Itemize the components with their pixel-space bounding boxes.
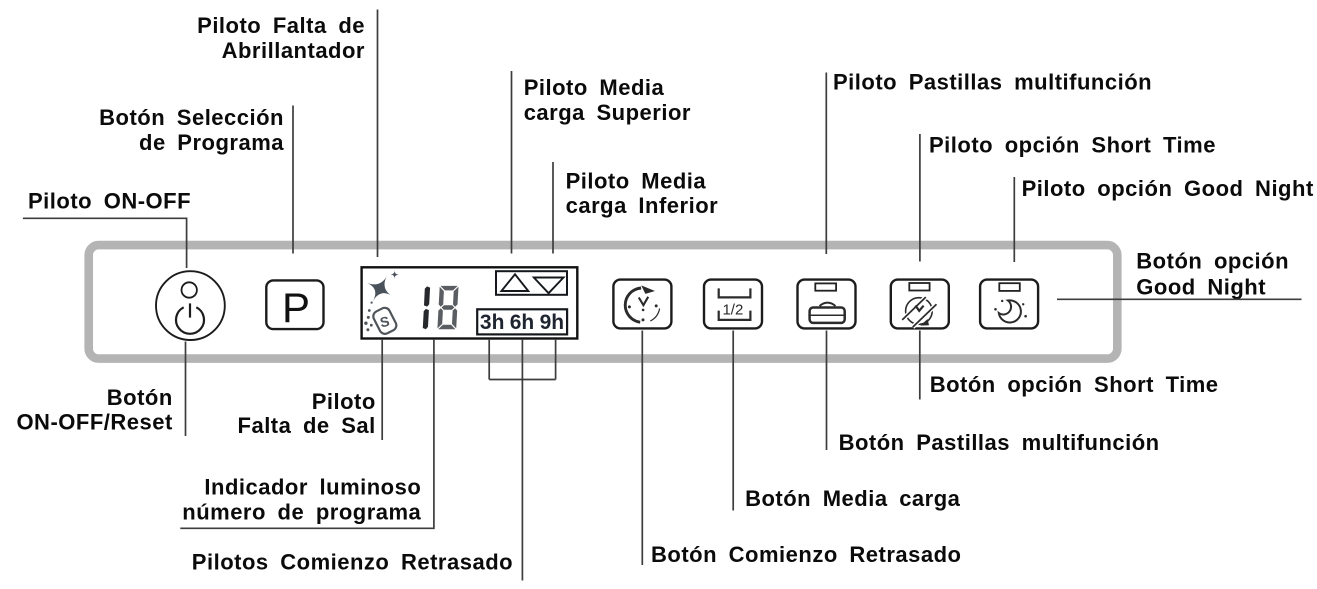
svg-text:Falta de Sal: Falta de Sal <box>238 413 376 438</box>
svg-text:de Programa: de Programa <box>139 130 284 155</box>
svg-text:carga Inferior: carga Inferior <box>566 193 719 218</box>
svg-text:carga Superior: carga Superior <box>524 100 691 125</box>
svg-text:Botón opción Short Time: Botón opción Short Time <box>930 372 1219 397</box>
svg-text:Botón opción: Botón opción <box>1136 248 1289 273</box>
svg-text:Botón Selección: Botón Selección <box>99 105 284 130</box>
svg-text:Piloto: Piloto <box>312 389 376 414</box>
svg-text:3h 6h 9h: 3h 6h 9h <box>480 311 564 334</box>
svg-text:Piloto Pastillas multifunción: Piloto Pastillas multifunción <box>833 69 1152 94</box>
svg-text:Indicador luminoso: Indicador luminoso <box>204 475 421 500</box>
svg-text:Piloto opción Good Night: Piloto opción Good Night <box>1022 176 1314 201</box>
svg-text:P: P <box>282 284 310 331</box>
svg-text:1/2: 1/2 <box>722 302 743 319</box>
svg-text:Botón Pastillas multifunción: Botón Pastillas multifunción <box>839 430 1160 455</box>
svg-text:Abrillantador: Abrillantador <box>222 38 365 63</box>
svg-text:Botón Media carga: Botón Media carga <box>745 486 961 511</box>
svg-text:Piloto opción Short Time: Piloto opción Short Time <box>929 132 1216 157</box>
svg-text:Piloto ON-OFF: Piloto ON-OFF <box>28 188 191 213</box>
svg-text:número de programa: número de programa <box>182 500 421 525</box>
svg-text:ON-OFF/Reset: ON-OFF/Reset <box>16 409 173 434</box>
svg-text:Good Night: Good Night <box>1136 275 1266 300</box>
svg-text:Botón Comienzo Retrasado: Botón Comienzo Retrasado <box>651 542 961 567</box>
svg-text:Botón: Botón <box>107 385 173 410</box>
svg-text:Pilotos Comienzo Retrasado: Pilotos Comienzo Retrasado <box>192 550 513 575</box>
svg-text:Piloto Falta de: Piloto Falta de <box>197 13 365 38</box>
svg-text:Piloto Media: Piloto Media <box>566 169 707 194</box>
svg-text:Piloto Media: Piloto Media <box>524 75 665 100</box>
